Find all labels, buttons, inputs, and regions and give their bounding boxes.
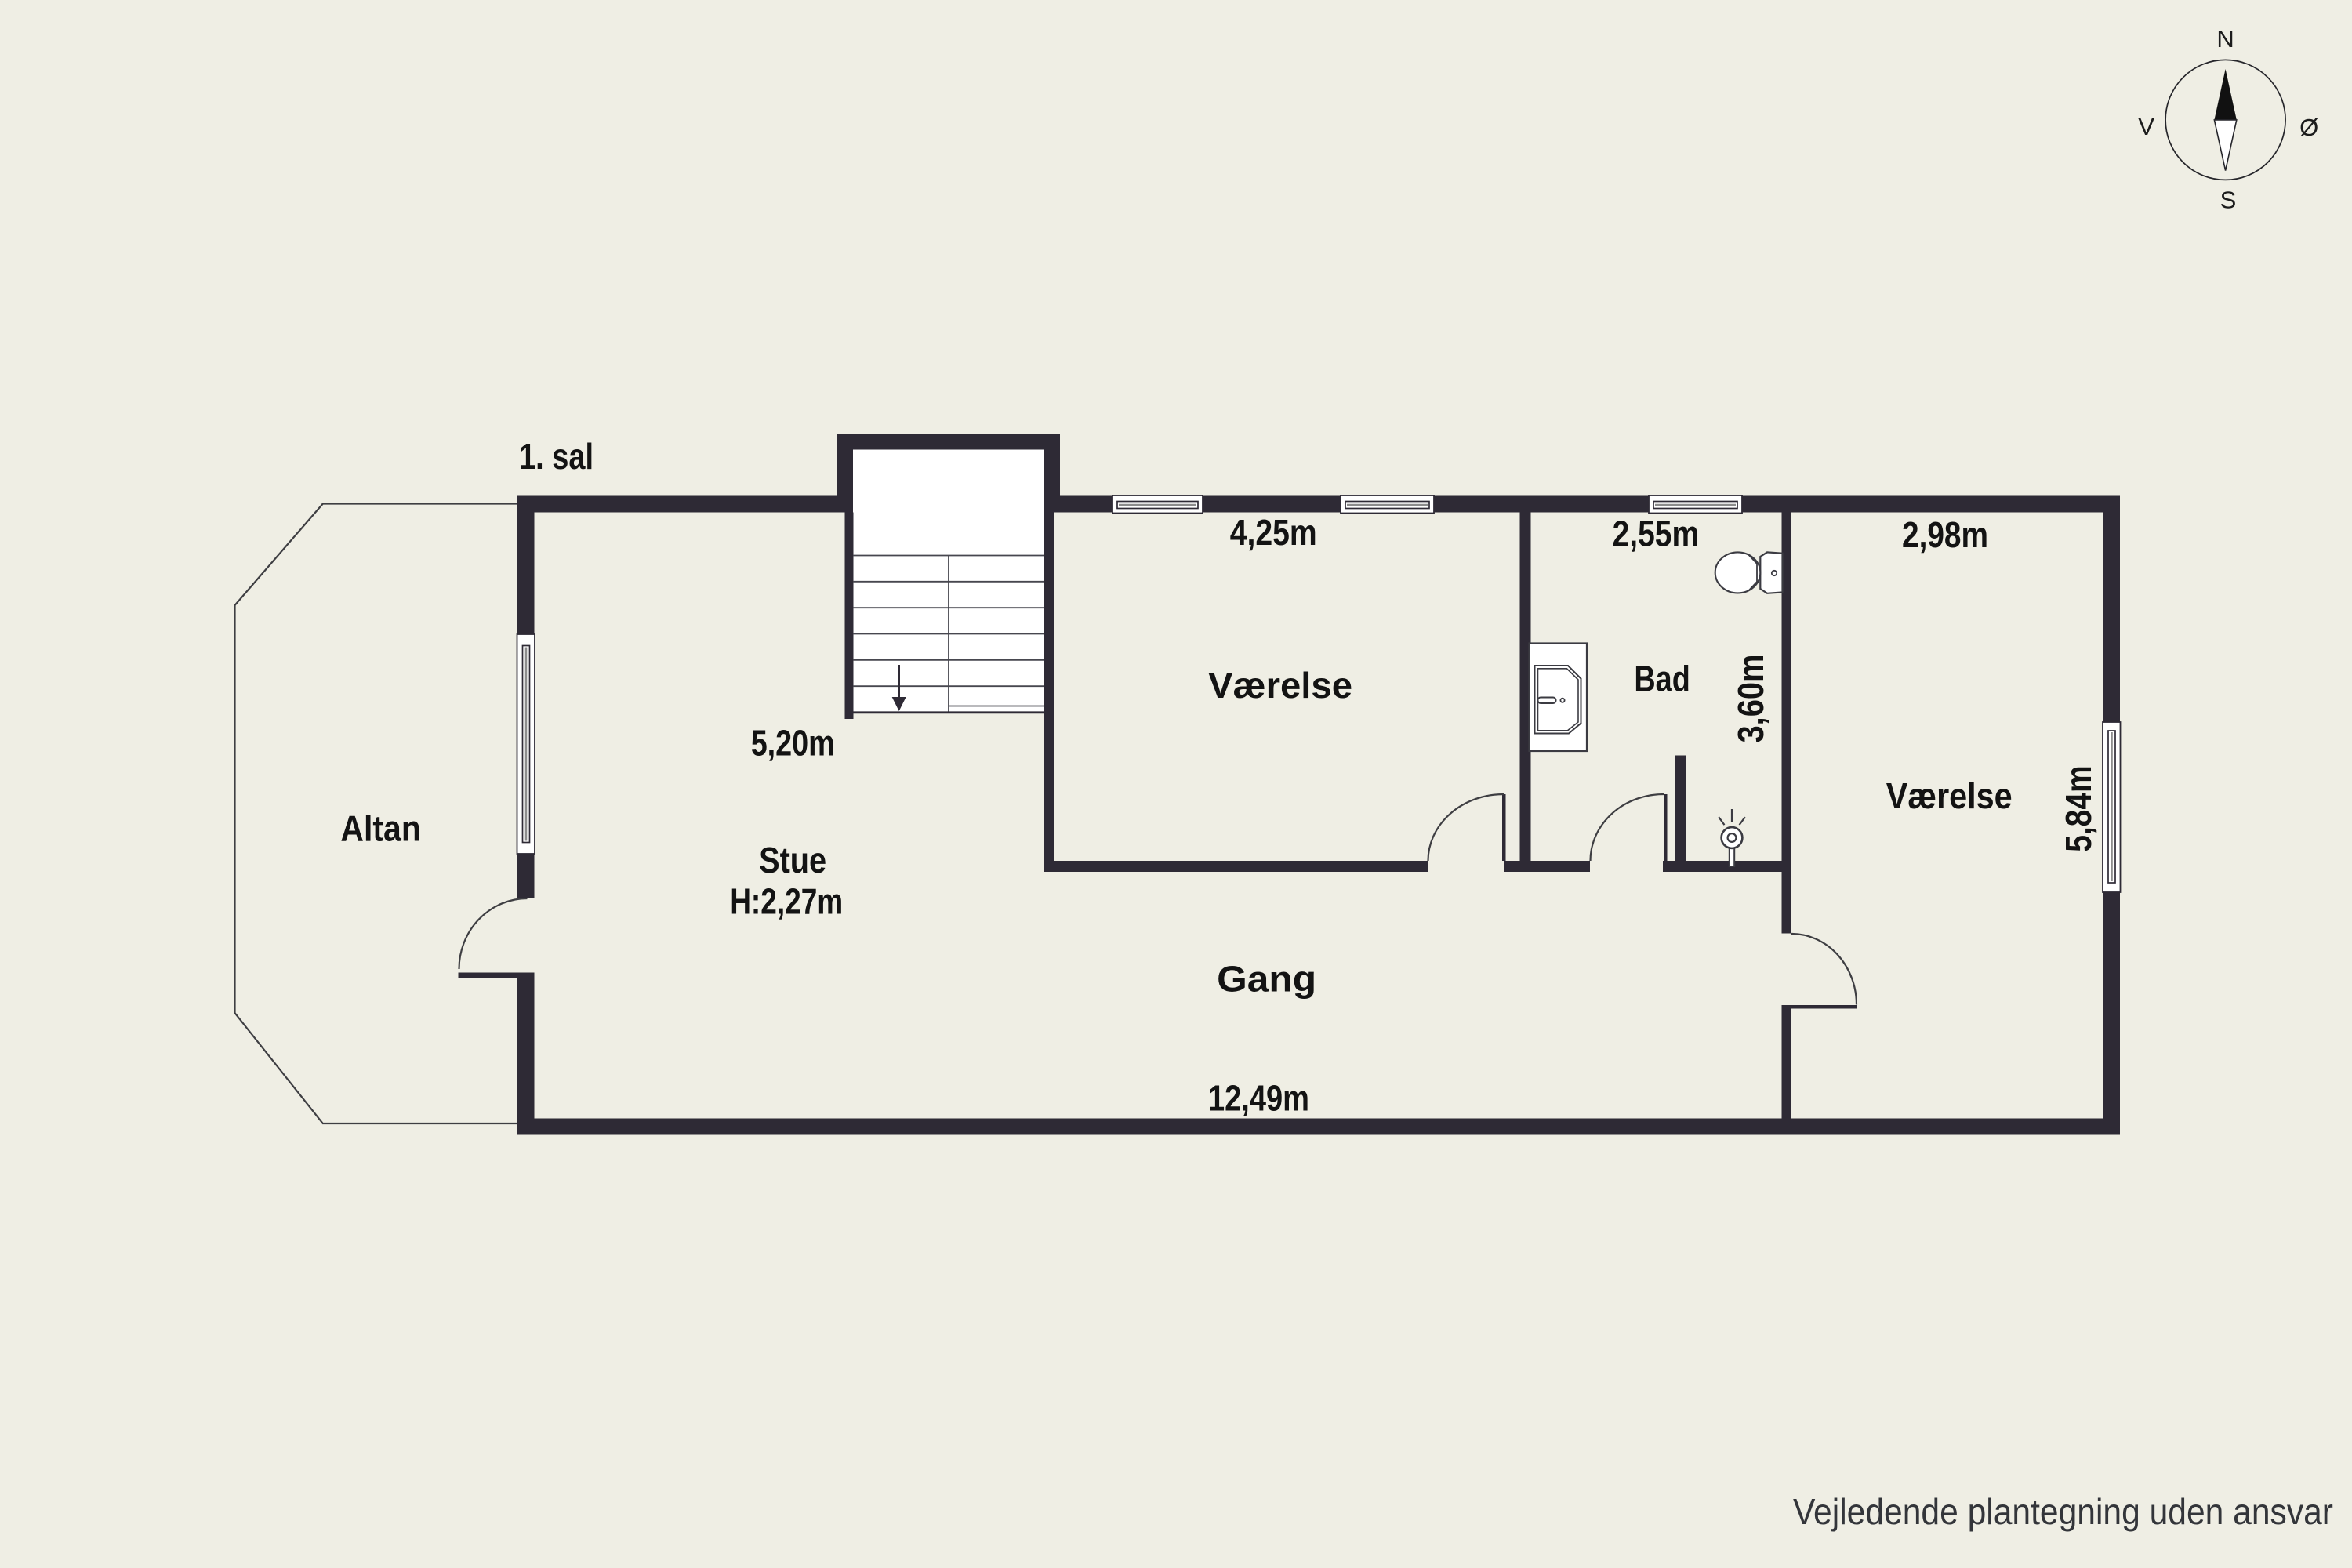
svg-text:Ø: Ø	[2299, 114, 2318, 141]
svg-text:S: S	[2220, 187, 2237, 214]
svg-text:N: N	[2216, 25, 2234, 53]
svg-text:12,49m: 12,49m	[1208, 1078, 1309, 1119]
svg-text:2,55m: 2,55m	[1613, 513, 1700, 554]
svg-text:5,84m: 5,84m	[2058, 765, 2099, 851]
svg-text:5,20m: 5,20m	[751, 723, 835, 764]
svg-text:Altan: Altan	[340, 808, 421, 849]
svg-text:Vejledende plantegning uden an: Vejledende plantegning uden ansvar	[1793, 1491, 2333, 1532]
svg-text:2,98m: 2,98m	[1902, 514, 1988, 555]
svg-text:Gang: Gang	[1217, 959, 1316, 1000]
svg-text:Værelse: Værelse	[1208, 665, 1352, 706]
svg-text:4,25m: 4,25m	[1230, 512, 1317, 553]
svg-text:Stue: Stue	[759, 840, 826, 880]
svg-text:1. sal: 1. sal	[519, 436, 593, 477]
svg-text:Værelse: Værelse	[1886, 775, 2013, 816]
svg-text:V: V	[2138, 113, 2154, 140]
svg-text:3,60m: 3,60m	[1730, 655, 1771, 743]
svg-text:Bad: Bad	[1634, 659, 1690, 699]
svg-text:H:2,27m: H:2,27m	[730, 881, 843, 922]
